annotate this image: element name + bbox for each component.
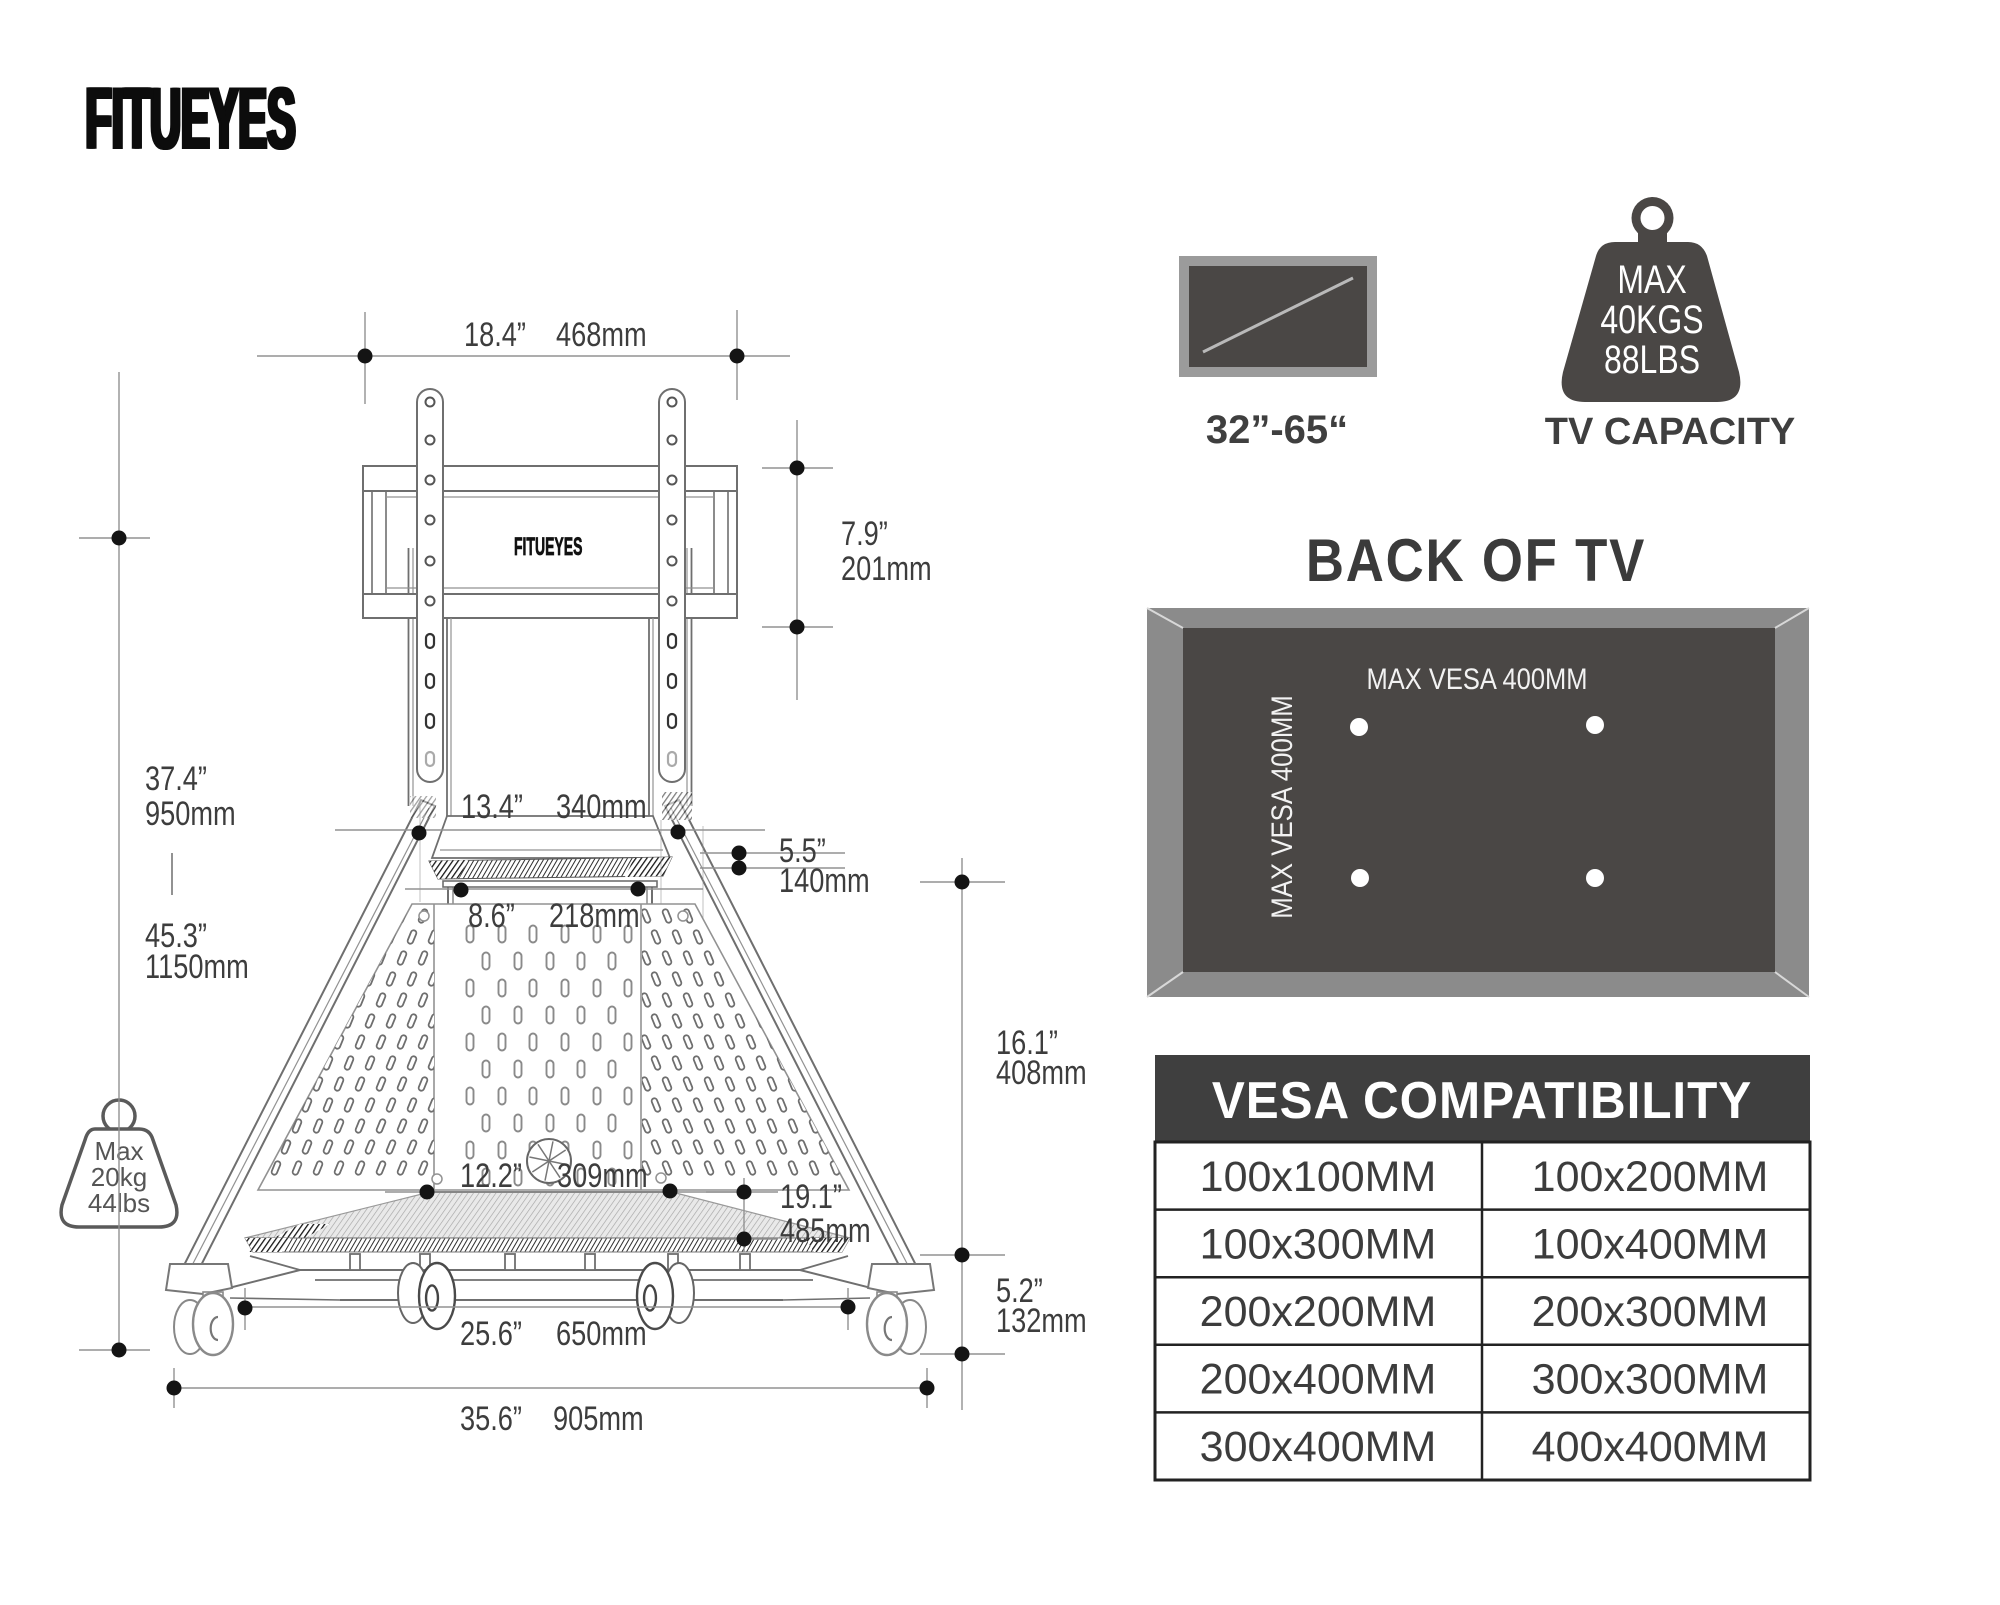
- svg-text:VESA COMPATIBILITY: VESA COMPATIBILITY: [1212, 1071, 1752, 1129]
- svg-text:13.4”: 13.4”: [461, 787, 523, 826]
- svg-text:MAX VESA 400MM: MAX VESA 400MM: [1367, 662, 1588, 695]
- svg-text:300x300MM: 300x300MM: [1532, 1356, 1769, 1404]
- svg-text:8.6”: 8.6”: [468, 896, 515, 935]
- svg-text:100x100MM: 100x100MM: [1200, 1153, 1437, 1201]
- svg-text:309mm: 309mm: [557, 1156, 648, 1195]
- svg-text:MAX: MAX: [1617, 257, 1686, 302]
- svg-text:100x200MM: 100x200MM: [1532, 1153, 1769, 1201]
- svg-text:132mm: 132mm: [996, 1301, 1087, 1340]
- svg-text:37.4”: 37.4”: [145, 759, 207, 798]
- svg-text:485mm: 485mm: [780, 1211, 871, 1250]
- svg-text:TV CAPACITY: TV CAPACITY: [1545, 411, 1796, 453]
- svg-text:468mm: 468mm: [556, 315, 647, 354]
- svg-text:100x400MM: 100x400MM: [1532, 1220, 1769, 1268]
- svg-text:200x300MM: 200x300MM: [1532, 1288, 1769, 1336]
- svg-text:MAX VESA 400MM: MAX VESA 400MM: [1265, 695, 1298, 919]
- svg-text:408mm: 408mm: [996, 1053, 1087, 1092]
- svg-text:650mm: 650mm: [556, 1314, 647, 1353]
- svg-text:7.9”: 7.9”: [841, 514, 888, 553]
- svg-text:12.2”: 12.2”: [460, 1156, 522, 1195]
- svg-text:FITUEYES: FITUEYES: [514, 534, 582, 561]
- svg-text:BACK OF TV: BACK OF TV: [1306, 527, 1646, 594]
- svg-text:100x300MM: 100x300MM: [1200, 1220, 1437, 1268]
- svg-text:218mm: 218mm: [549, 896, 640, 935]
- svg-text:300x400MM: 300x400MM: [1200, 1423, 1437, 1471]
- svg-text:200x200MM: 200x200MM: [1200, 1288, 1437, 1336]
- svg-text:400x400MM: 400x400MM: [1532, 1423, 1769, 1471]
- svg-text:905mm: 905mm: [553, 1399, 644, 1438]
- svg-text:35.6”: 35.6”: [460, 1399, 522, 1438]
- svg-text:25.6”: 25.6”: [460, 1314, 522, 1353]
- svg-text:1150mm: 1150mm: [145, 947, 249, 986]
- svg-text:200x400MM: 200x400MM: [1200, 1356, 1437, 1404]
- svg-text:950mm: 950mm: [145, 794, 236, 833]
- svg-text:32”-65“: 32”-65“: [1206, 408, 1348, 452]
- svg-text:88LBS: 88LBS: [1604, 337, 1700, 382]
- svg-text:19.1”: 19.1”: [780, 1177, 842, 1216]
- svg-text:18.4”: 18.4”: [464, 315, 526, 354]
- svg-text:140mm: 140mm: [779, 861, 870, 900]
- svg-text:FITUEYES: FITUEYES: [87, 71, 297, 167]
- svg-text:340mm: 340mm: [556, 787, 647, 826]
- svg-text:201mm: 201mm: [841, 549, 932, 588]
- svg-text:40KGS: 40KGS: [1600, 297, 1703, 342]
